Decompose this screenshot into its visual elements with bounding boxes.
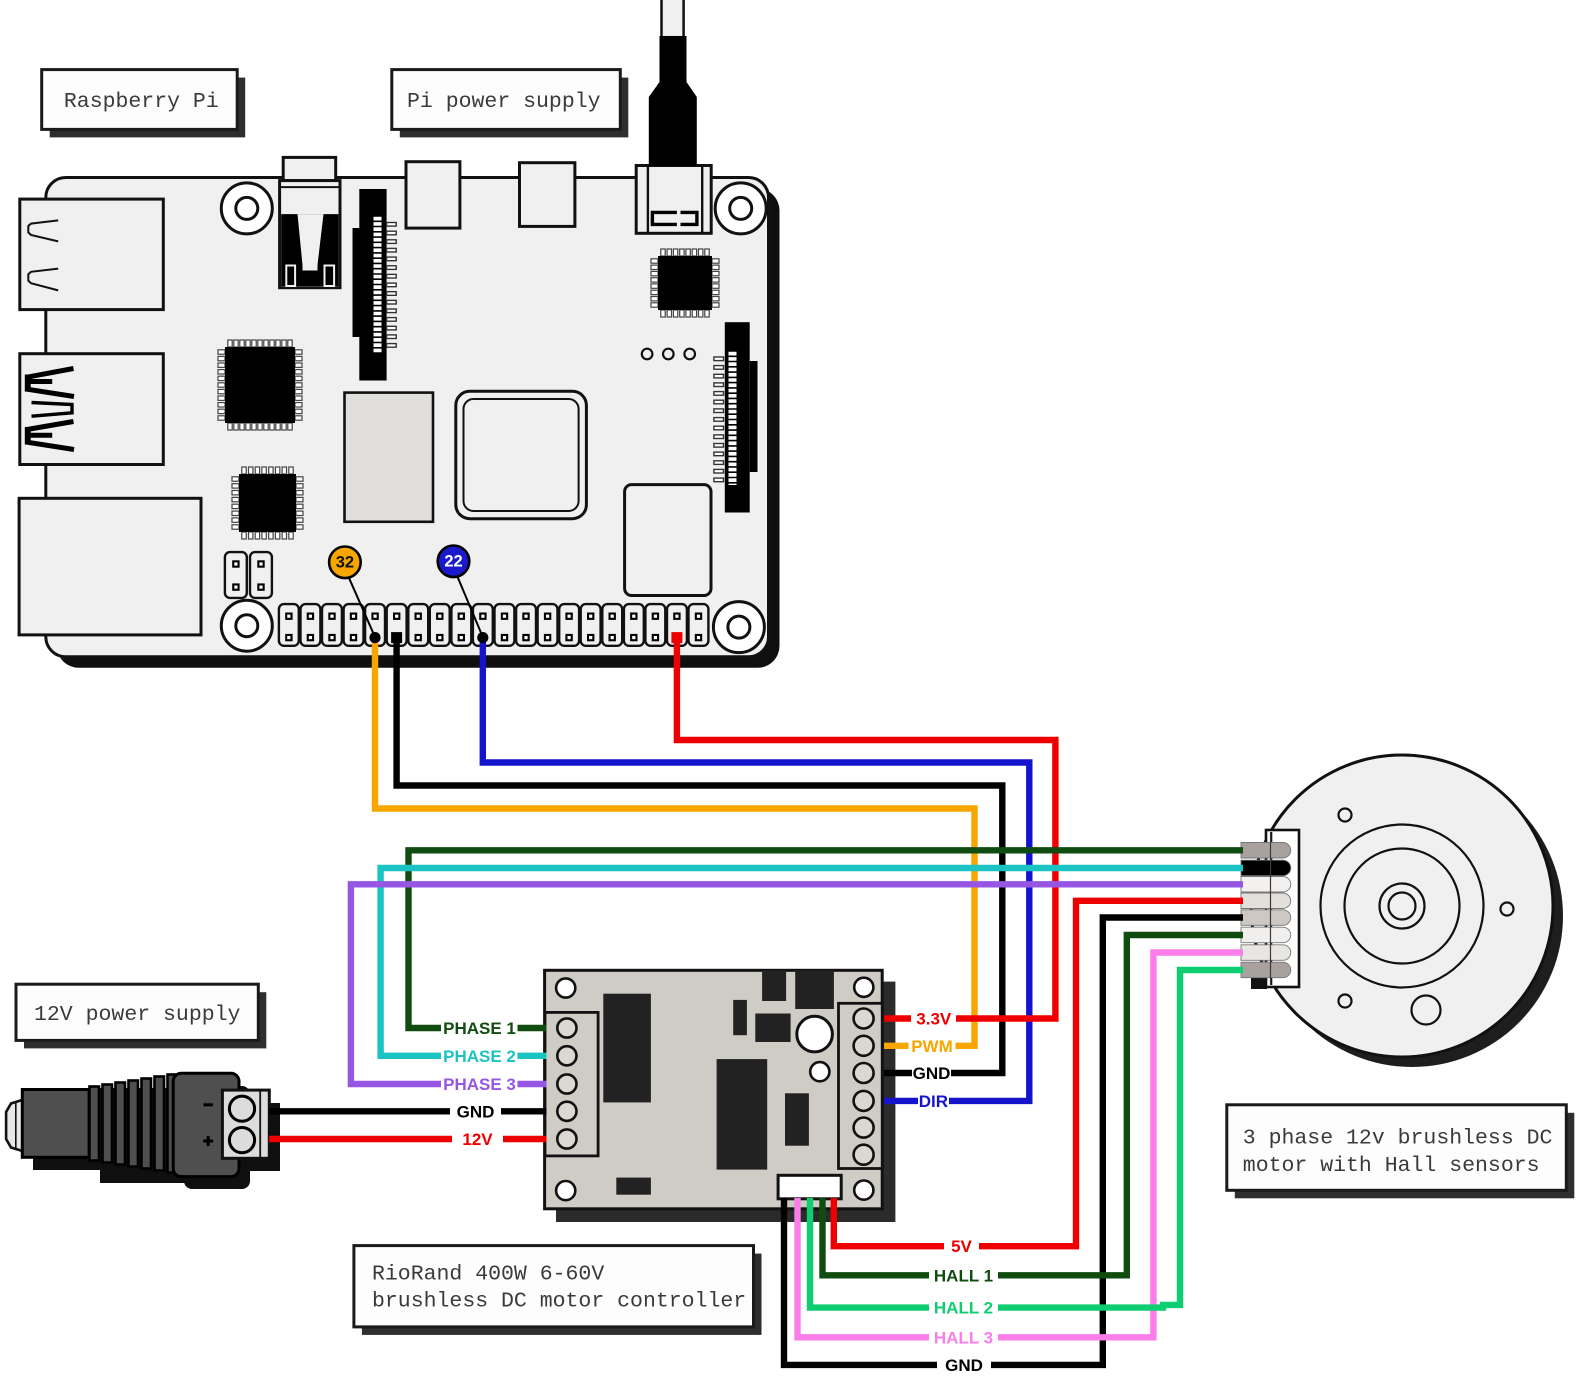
- svg-text:5V: 5V: [951, 1237, 972, 1256]
- svg-text:32: 32: [336, 554, 354, 572]
- svg-text:PWM: PWM: [911, 1037, 953, 1056]
- svg-text:Raspberry Pi: Raspberry Pi: [64, 90, 219, 114]
- svg-text:GND: GND: [945, 1356, 983, 1375]
- svg-text:DIR: DIR: [919, 1092, 948, 1111]
- svg-text:brushless DC motor controller: brushless DC motor controller: [372, 1290, 746, 1314]
- svg-text:PHASE 3: PHASE 3: [443, 1075, 516, 1094]
- svg-text:motor with Hall sensors: motor with Hall sensors: [1243, 1154, 1540, 1178]
- svg-text:RioRand 400W 6-60V: RioRand 400W 6-60V: [372, 1262, 604, 1286]
- svg-text:GND: GND: [913, 1064, 951, 1083]
- svg-text:HALL 2: HALL 2: [934, 1299, 993, 1318]
- svg-text:HALL 1: HALL 1: [934, 1266, 993, 1285]
- svg-text:HALL 3: HALL 3: [934, 1328, 993, 1347]
- svg-text:PHASE 2: PHASE 2: [443, 1047, 516, 1066]
- svg-text:22: 22: [444, 553, 462, 571]
- svg-text:3 phase 12v brushless DC: 3 phase 12v brushless DC: [1243, 1127, 1553, 1151]
- svg-text:3.3V: 3.3V: [916, 1010, 952, 1029]
- svg-text:Pi power supply: Pi power supply: [407, 90, 601, 114]
- svg-text:12V: 12V: [462, 1130, 493, 1149]
- svg-text:12V power supply: 12V power supply: [34, 1003, 241, 1027]
- svg-text:PHASE 1: PHASE 1: [443, 1019, 516, 1038]
- svg-text:GND: GND: [457, 1102, 495, 1121]
